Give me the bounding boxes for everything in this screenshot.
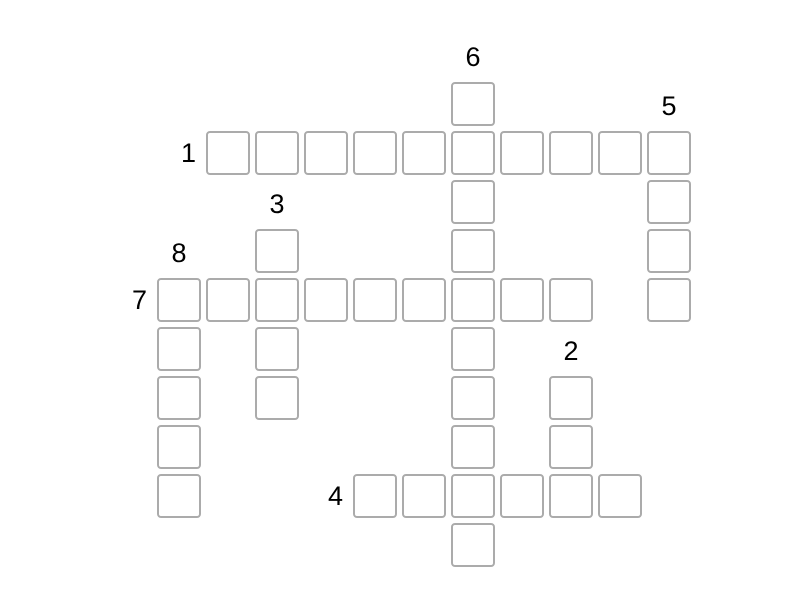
crossword-cell-8-4[interactable] [157,425,201,469]
crossword-cell-7-9[interactable] [549,278,593,322]
clue-number-6: 6 [451,42,495,72]
crossword-cell-3-4[interactable] [255,376,299,420]
crossword-cell-7-1[interactable] [157,278,201,322]
crossword-cell-2-2[interactable] [549,425,593,469]
crossword-cell-6-4[interactable] [451,229,495,273]
crossword-cell-1-3[interactable] [304,131,348,175]
crossword-cell-1-4[interactable] [353,131,397,175]
crossword-cell-6-7[interactable] [451,376,495,420]
crossword-cell-8-5[interactable] [157,474,201,518]
crossword-cell-6-10[interactable] [451,523,495,567]
crossword-cell-7-2[interactable] [206,278,250,322]
crossword-cell-6-8[interactable] [451,425,495,469]
crossword-cell-7-4[interactable] [304,278,348,322]
crossword-cell-3-2[interactable] [255,278,299,322]
crossword-cell-8-2[interactable] [157,327,201,371]
crossword-cell-7-6[interactable] [402,278,446,322]
clue-number-4: 4 [293,481,343,511]
clue-number-5: 5 [647,91,691,121]
clue-number-8: 8 [157,238,201,268]
crossword-cell-4-1[interactable] [353,474,397,518]
crossword-cell-4-3[interactable] [451,474,495,518]
crossword-cell-2-1[interactable] [549,376,593,420]
crossword-cell-1-5[interactable] [402,131,446,175]
crossword-cell-6-5[interactable] [451,278,495,322]
clue-number-2: 2 [549,336,593,366]
clue-number-7: 7 [97,285,147,315]
crossword-cell-1-9[interactable] [598,131,642,175]
crossword-cell-1-8[interactable] [549,131,593,175]
crossword-cell-5-3[interactable] [647,229,691,273]
crossword-cell-3-3[interactable] [255,327,299,371]
crossword-cell-8-3[interactable] [157,376,201,420]
crossword-cell-3-1[interactable] [255,229,299,273]
crossword-cell-6-3[interactable] [451,180,495,224]
crossword-cell-4-2[interactable] [402,474,446,518]
crossword-cell-1-10[interactable] [647,131,691,175]
crossword-cell-4-6[interactable] [598,474,642,518]
clue-number-1: 1 [146,138,196,168]
crossword-cell-6-6[interactable] [451,327,495,371]
crossword-cell-1-2[interactable] [255,131,299,175]
crossword-cell-6-1[interactable] [451,82,495,126]
crossword-cell-7-8[interactable] [500,278,544,322]
crossword-cell-2-3[interactable] [549,474,593,518]
crossword-cell-5-2[interactable] [647,180,691,224]
crossword-cell-1-7[interactable] [500,131,544,175]
crossword-cell-7-5[interactable] [353,278,397,322]
clue-number-3: 3 [255,189,299,219]
crossword-board: 12345678 [0,0,800,600]
crossword-cell-1-1[interactable] [206,131,250,175]
crossword-cell-1-6[interactable] [451,131,495,175]
crossword-cell-4-4[interactable] [500,474,544,518]
crossword-cell-5-4[interactable] [647,278,691,322]
